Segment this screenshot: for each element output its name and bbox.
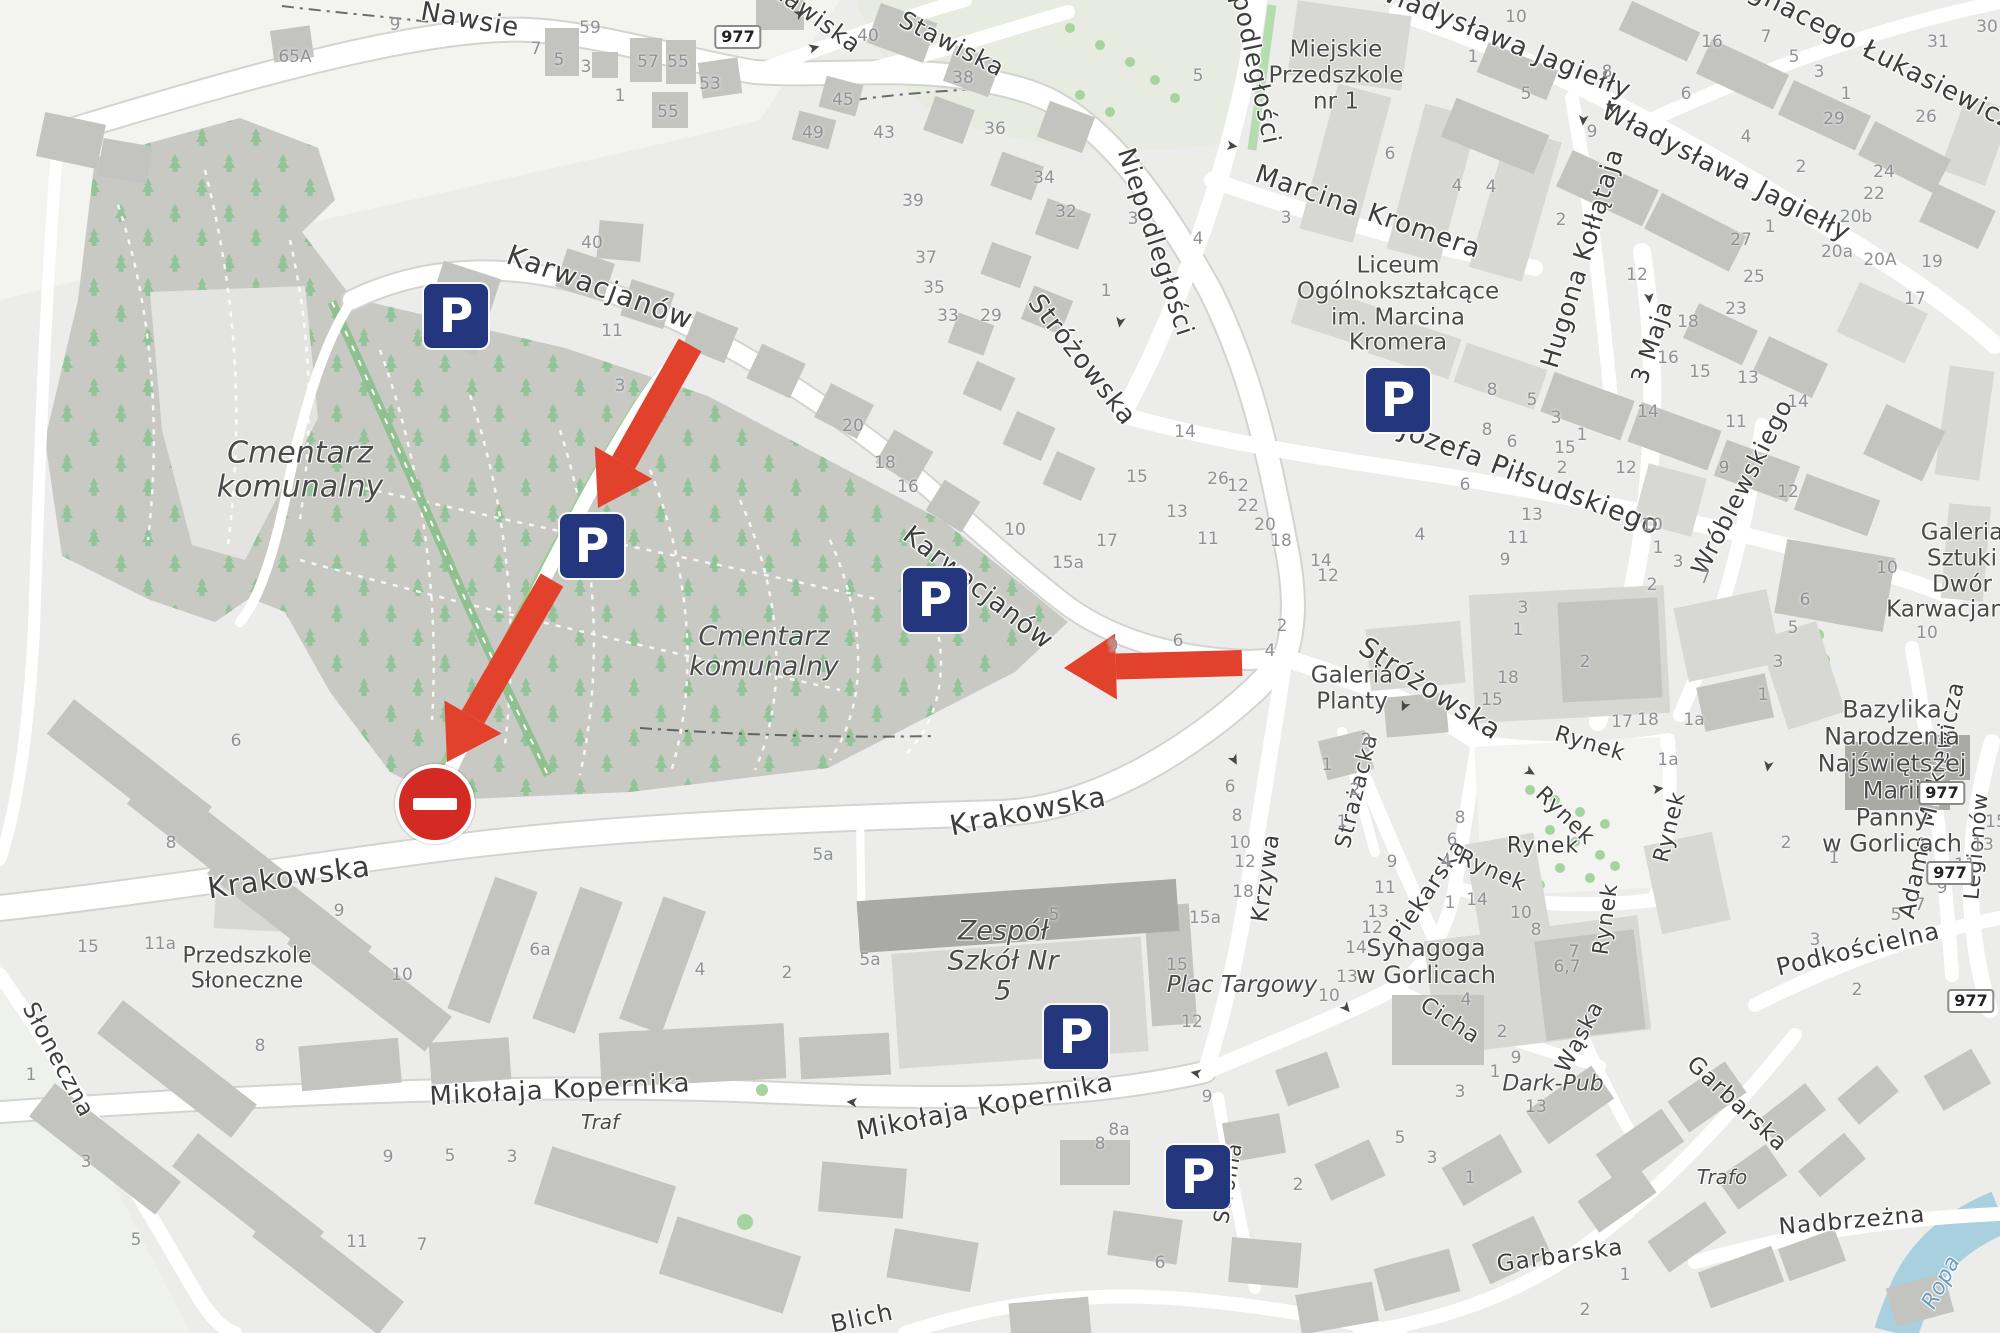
oneway-arrow-icon: ➤ [1641, 291, 1657, 305]
house-number: 11 [601, 321, 623, 341]
house-number: 55 [657, 102, 679, 122]
poi-label-line: im. Marcina [1297, 305, 1499, 331]
poi-label-line: Synagoga [1356, 935, 1496, 962]
house-number: 20A [1863, 250, 1896, 270]
poi-label-line: w Gorlicach [1818, 831, 1967, 858]
house-number: 1 [1101, 281, 1112, 301]
poi-label: Synagogaw Gorlicach [1356, 935, 1496, 989]
house-number: 2 [1556, 210, 1567, 230]
house-number: 18 [1497, 668, 1519, 688]
house-number: 8 [166, 833, 177, 853]
poi-label-line: Galeria [1311, 663, 1393, 689]
house-number: 31 [1927, 32, 1949, 52]
house-number: 3 [1518, 598, 1529, 618]
house-number: 4 [1461, 990, 1472, 1010]
house-number: 11 [1507, 528, 1529, 548]
house-number: 1 [1490, 1062, 1501, 1082]
house-number: 11 [346, 1232, 368, 1252]
house-number: 2 [1580, 1300, 1591, 1320]
route-badge-977: 977 [1947, 989, 1994, 1013]
house-number: 9 [1719, 458, 1730, 478]
house-number: 6a [529, 940, 550, 960]
house-number: 6 [1155, 1253, 1166, 1273]
house-number: 27 [1730, 230, 1752, 250]
house-number: 13 [1367, 902, 1389, 922]
poi-label-line: Zespół [947, 917, 1058, 947]
house-number: 43 [873, 123, 895, 143]
house-number: 1 [1513, 620, 1524, 640]
house-number: 5 [1395, 1128, 1406, 1148]
house-number: 8 [255, 1036, 266, 1056]
house-number: 17 [1096, 531, 1118, 551]
house-number: 3 [581, 57, 592, 77]
house-number: 15 [1166, 955, 1188, 975]
poi-label-line: Karwacjanów [1886, 598, 2000, 624]
house-number: 1 [1653, 538, 1664, 558]
house-number: 3 [615, 376, 626, 396]
poi-label-line: Panny [1818, 804, 1967, 831]
house-number: 3 [81, 1152, 92, 1172]
no-entry-icon [395, 764, 475, 844]
house-number: 15 [1689, 362, 1711, 382]
house-number: 20a [1821, 242, 1853, 262]
house-number: 3 [1427, 1148, 1438, 1168]
poi-label: GaleriaPlanty [1311, 663, 1393, 715]
house-number: 5 [1193, 66, 1204, 86]
house-number: 2 [1293, 1175, 1304, 1195]
poi-label-line: nr 1 [1269, 89, 1404, 115]
house-number: 9 [1387, 852, 1398, 872]
house-number: 5 [554, 50, 565, 70]
house-number: 9 [334, 901, 345, 921]
house-number: 14 [1174, 422, 1196, 442]
house-number: 2 [1781, 833, 1792, 853]
house-number: 13 [1521, 505, 1543, 525]
oneway-arrow-icon: ➤ [1651, 781, 1666, 798]
house-number: 11 [1197, 529, 1219, 549]
house-number: 15 [1481, 690, 1503, 710]
house-number: 1 [1758, 685, 1769, 705]
house-number: 6 [231, 731, 242, 751]
house-number: 8 [1602, 62, 1613, 82]
house-number: 4 [1193, 229, 1204, 249]
house-number: 8 [1232, 806, 1243, 826]
house-number: 49 [802, 123, 824, 143]
house-number: 8 [1531, 920, 1542, 940]
house-number: 12 [1626, 265, 1648, 285]
house-number: 7 [1700, 568, 1711, 588]
house-number: 40 [581, 233, 603, 253]
house-number: 9 [1202, 1087, 1213, 1107]
house-number: 1a [1657, 750, 1678, 770]
house-number: 3 [1551, 408, 1562, 428]
house-number: 59 [579, 18, 601, 38]
house-number: 10 [1318, 986, 1340, 1006]
house-number: 5 [1521, 84, 1532, 104]
house-number: 3 [1773, 652, 1784, 672]
house-number: 5 [1891, 905, 1902, 925]
house-number: 25 [1743, 267, 1765, 287]
house-number: 30 [1976, 17, 1998, 37]
oneway-arrow-icon: ➤ [1575, 113, 1591, 127]
parking-icon: P [903, 568, 967, 632]
poi-label-line: Trafo [1697, 1166, 1747, 1188]
house-number: 1 [1577, 425, 1588, 445]
house-number: 12 [1234, 852, 1256, 872]
poi-label-line: Szkół Nr [947, 947, 1058, 977]
parking-icon: P [1044, 1005, 1108, 1069]
house-number: 6 [1385, 144, 1396, 164]
house-number: 6 [1681, 84, 1692, 104]
house-number: 3 [1281, 208, 1292, 228]
house-number: 17 [1611, 712, 1633, 732]
poi-label-line: Plac Targowy [1167, 973, 1318, 999]
poi-label-line: Planty [1311, 689, 1393, 715]
house-number: 15a [1189, 908, 1221, 928]
house-number: 2 [782, 963, 793, 983]
house-number: 14 [1466, 890, 1488, 910]
house-number: 16 [897, 477, 919, 497]
house-number: 2 [1557, 458, 1568, 478]
poi-label-line: Traf [581, 1111, 619, 1133]
poi-label-line: Liceum [1297, 254, 1499, 280]
house-number: 4 [1741, 127, 1752, 147]
house-number: 8 [1487, 380, 1498, 400]
house-number: 55 [667, 52, 689, 72]
poi-label-line: komunalny [217, 470, 383, 504]
house-number: 10 [1916, 623, 1938, 643]
house-number: 1 [1829, 848, 1840, 868]
house-number: 10 [1641, 515, 1663, 535]
house-number: 40 [857, 26, 879, 46]
house-number: 2 [1580, 652, 1591, 672]
house-number: 13 [1737, 368, 1759, 388]
house-number: 18 [1677, 312, 1699, 332]
house-number: 1 [1620, 1265, 1631, 1285]
poi-label-line: Słoneczne [182, 969, 311, 994]
house-number: 4 [1441, 852, 1452, 872]
house-number: 20 [842, 416, 864, 436]
house-number: 2 [1796, 157, 1807, 177]
house-number: 36 [984, 119, 1006, 139]
house-number: 45 [832, 90, 854, 110]
poi-label-line: komunalny [689, 652, 839, 682]
house-number: 3 [1455, 1082, 1466, 1102]
house-number: 1 [1468, 47, 1479, 67]
house-number: 7 [1761, 27, 1772, 47]
route-badge-977: 977 [1926, 861, 1973, 885]
house-number: 10 [1510, 903, 1532, 923]
parking-icon: P [424, 284, 488, 348]
house-number: 3 [1814, 62, 1825, 82]
house-number: 1 [1465, 1168, 1476, 1188]
house-number: 18 [1232, 882, 1254, 902]
poi-label: Cmentarzkomunalny [689, 622, 839, 682]
house-number: 9 [1500, 550, 1511, 570]
poi-label-line: Sztuki [1886, 546, 2000, 572]
house-number: 53 [699, 74, 721, 94]
house-number: 1 [26, 1065, 37, 1085]
house-number: 15 [1554, 438, 1576, 458]
house-number: 6 [1225, 777, 1236, 797]
street-label: Rynek [1507, 834, 1579, 859]
parking-icon: P [1166, 1145, 1230, 1209]
house-number: 12 [1317, 566, 1339, 586]
house-number: 14 [1787, 392, 1809, 412]
map-base-layer [0, 0, 2000, 1333]
city-map[interactable]: NawsieStawiskaStawiskaKarwacjanówKarwacj… [0, 0, 2000, 1333]
house-number: 17 [1904, 289, 1926, 309]
house-number: 32 [1055, 202, 1077, 222]
house-number: 18 [1270, 531, 1292, 551]
house-number: 37 [915, 248, 937, 268]
house-number: 3 [1810, 930, 1821, 950]
house-number: 12 [1227, 476, 1249, 496]
route-badge-977: 977 [1918, 781, 1965, 805]
house-number: 34 [1033, 168, 1055, 188]
house-number: 12 [1777, 482, 1799, 502]
house-number: 65A [278, 47, 311, 67]
house-number: 4 [1452, 176, 1463, 196]
house-number: 12 [1181, 1012, 1203, 1032]
house-number: 8 [1482, 420, 1493, 440]
house-number: 5 [445, 1146, 456, 1166]
poi-label: Trafo [1697, 1166, 1747, 1188]
house-number: 2 [1647, 575, 1658, 595]
route-badge-977: 977 [714, 25, 761, 49]
poi-label: PrzedszkoleSłoneczne [182, 944, 311, 993]
oneway-arrow-icon: ➤ [845, 1094, 859, 1110]
poi-label: Traf [581, 1111, 619, 1133]
house-number: 3 [1673, 552, 1684, 572]
house-number: 9 [390, 15, 401, 35]
house-number: 10 [1876, 558, 1898, 578]
poi-label-line: Dwór [1886, 572, 2000, 598]
house-number: 6,7 [1553, 957, 1580, 977]
house-number: 2 [1497, 1022, 1508, 1042]
house-number: 13 [1972, 835, 1994, 855]
house-number: 1 [1337, 812, 1348, 832]
poi-label-line: w Gorlicach [1356, 962, 1496, 989]
house-number: 6 [1800, 590, 1811, 610]
house-number: 26 [1915, 107, 1937, 127]
house-number: 7 [417, 1235, 428, 1255]
poi-label-line: Cmentarz [689, 622, 839, 652]
house-number: 29 [1823, 109, 1845, 129]
house-number: 4 [695, 960, 706, 980]
house-number: 4 [1486, 177, 1497, 197]
house-number: 1 [615, 86, 626, 106]
poi-label-line: Cmentarz [217, 436, 383, 470]
house-number: 6 [1460, 475, 1471, 495]
poi-label-line: Narodzenia [1818, 723, 1967, 750]
house-number: 6 [1507, 432, 1518, 452]
house-number: 12 [1615, 458, 1637, 478]
house-number: 5 [1049, 905, 1060, 925]
house-number: 13 [1336, 967, 1358, 987]
house-number: 5 [1789, 47, 1800, 67]
house-number: 38 [952, 68, 974, 88]
poi-label: Plac Targowy [1167, 973, 1318, 999]
house-number: 5a [812, 845, 833, 865]
poi-label: BazylikaNarodzeniaNajświętszejMariiPanny… [1818, 696, 1967, 857]
house-number: 39 [902, 191, 924, 211]
house-number: 57 [637, 52, 659, 72]
house-number: 8 [1455, 808, 1466, 828]
oneway-arrow-icon: ➤ [1760, 759, 1777, 774]
no-entry-bar [413, 798, 457, 810]
house-number: 1 [1445, 893, 1456, 913]
house-number: 15 [77, 937, 99, 957]
parking-icon: P [560, 514, 624, 578]
house-number: 10 [1229, 833, 1251, 853]
house-number: 5 [131, 1230, 142, 1250]
house-number: 5 [1788, 618, 1799, 638]
poi-label: ZespółSzkół Nr5 [947, 917, 1058, 1008]
house-number: 8a [1108, 1120, 1129, 1140]
house-number: 35 [923, 278, 945, 298]
house-number: 10 [1004, 520, 1026, 540]
house-number: 2 [1852, 980, 1863, 1000]
house-number: 1 [1322, 755, 1333, 775]
poi-label: Dark-Pub [1502, 1073, 1603, 1098]
oneway-arrow-icon: ➤ [1225, 138, 1240, 155]
poi-label: Cmentarzkomunalny [217, 436, 383, 503]
parking-icon: P [1366, 368, 1430, 432]
poi-label-line: Dark-Pub [1502, 1073, 1603, 1098]
house-number: 4 [1265, 641, 1276, 661]
poi-label-line: Najświętszej [1818, 750, 1967, 777]
house-number: 5 [1527, 390, 1538, 410]
house-number: 9 [383, 1147, 394, 1167]
poi-label-line: Miejskie [1269, 37, 1404, 63]
house-number: 22 [1237, 496, 1259, 516]
house-number: 13 [1166, 502, 1188, 522]
poi-label-line: Przedszkole [1269, 63, 1404, 89]
house-number: 7 [1915, 895, 1926, 915]
house-number: 14 [1637, 402, 1659, 422]
house-number: 1a [1683, 710, 1704, 730]
house-number: 13 [1525, 1097, 1547, 1117]
house-number: 2 [1277, 616, 1288, 636]
house-number: 1 [1841, 84, 1852, 104]
house-number: 16 [1657, 348, 1679, 368]
house-number: 18 [874, 453, 896, 473]
house-number: 26 [1207, 469, 1229, 489]
house-number: 2 [1350, 780, 1361, 800]
house-number: 6 [1447, 830, 1458, 850]
poi-label-line: Przedszkole [182, 944, 311, 969]
house-number: 1 [1765, 217, 1776, 237]
house-number: 10 [391, 965, 413, 985]
house-number: 3 [1128, 209, 1139, 229]
poi-label: GaleriaSztukiDwórKarwacjanów [1886, 521, 2000, 624]
poi-label: MiejskiePrzedszkolenr 1 [1269, 37, 1404, 114]
house-number: 9 [1511, 1048, 1522, 1068]
house-number: 24 [1873, 162, 1895, 182]
poi-label-line: Kromera [1297, 331, 1499, 357]
house-number: 19 [1921, 252, 1943, 272]
poi-label-line: Ogólnokształcące [1297, 279, 1499, 305]
house-number: 14 [1345, 938, 1367, 958]
house-number: 2 [1361, 730, 1372, 750]
house-number: 5a [859, 950, 880, 970]
house-number: 33 [937, 306, 959, 326]
house-number: 29 [980, 306, 1002, 326]
house-number: 10 [1505, 7, 1527, 27]
house-number: 15a [1052, 553, 1084, 573]
house-number: 3 [507, 1147, 518, 1167]
house-number: 16 [1701, 32, 1723, 52]
house-number: 15 [1126, 467, 1148, 487]
house-number: 11a [144, 934, 176, 954]
house-number: 11 [1725, 412, 1747, 432]
house-number: 23 [1725, 299, 1747, 319]
house-number: 18 [1637, 710, 1659, 730]
house-number: 6 [1173, 631, 1184, 651]
house-number: 4 [1415, 525, 1426, 545]
oneway-arrow-icon: ➤ [1112, 315, 1129, 330]
house-number: 22 [1863, 184, 1885, 204]
house-number: 9 [1108, 636, 1119, 656]
poi-label-line: Galeria [1886, 521, 2000, 547]
house-number: 8 [1095, 1134, 1106, 1154]
house-number: 11 [1374, 878, 1396, 898]
house-number: 20b [1840, 207, 1872, 227]
poi-label-line: 5 [947, 977, 1058, 1007]
house-number: 15 [1985, 812, 2000, 832]
poi-label: LiceumOgólnokształcąceim. MarcinaKromera [1297, 254, 1499, 357]
house-number: 7 [531, 39, 542, 59]
poi-label-line: Bazylika [1818, 696, 1967, 723]
